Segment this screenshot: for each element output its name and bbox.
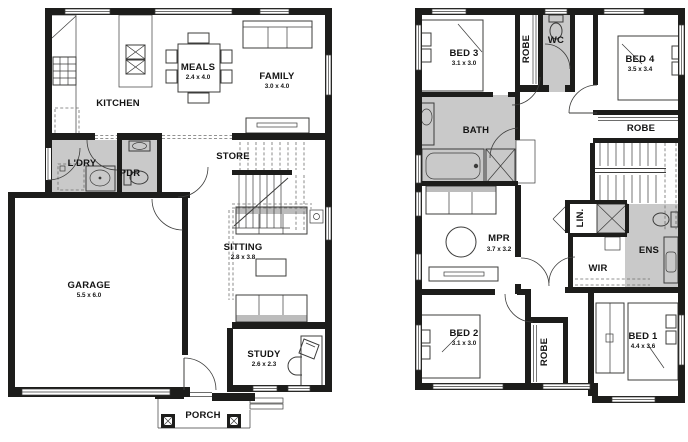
window [155, 9, 232, 14]
window [432, 9, 466, 14]
laundry-external-door [46, 148, 51, 180]
room-label-porch: PORCH [185, 410, 220, 421]
robe2-sliding-doors [534, 325, 537, 382]
room-label-garage: GARAGE [68, 280, 111, 291]
window [260, 9, 289, 14]
room-dim-bed1: 4.4 x 3.6 [631, 343, 656, 350]
window [416, 192, 421, 216]
window [543, 384, 590, 389]
garage-door-panel [22, 389, 170, 395]
room-label-bath: BATH [463, 125, 489, 136]
room-label-robe4: ROBE [627, 123, 655, 134]
robe4-sliding-doors [598, 118, 683, 121]
entry-door-swing [184, 358, 216, 390]
family-sofa [243, 21, 312, 48]
room-label-kitchen: KITCHEN [96, 98, 140, 109]
room-label-family: FAMILY [259, 71, 295, 82]
room-dim-sitting: 2.8 x 3.8 [231, 254, 256, 261]
hall-linen-cupboard [516, 140, 535, 183]
mpr-round-table [446, 227, 476, 257]
linen-bifold-door [553, 206, 566, 232]
wall-light-symbol [310, 210, 323, 223]
cooktop-symbol [126, 45, 145, 74]
window [612, 397, 655, 402]
ground-labels: KITCHEN MEALS 2.4 x 4.0 FAMILY 3.0 x 4.0… [68, 62, 295, 421]
ground-floor-plan: KITCHEN MEALS 2.4 x 4.0 FAMILY 3.0 x 4.0… [8, 8, 332, 428]
room-label-lin: LIN. [575, 209, 586, 228]
tv-unit-mpr [429, 267, 498, 281]
room-label-bed1: BED 1 [629, 331, 658, 342]
room-dim-mpr: 3.7 x 3.2 [487, 246, 512, 253]
room-dim-bed3: 3.1 x 3.0 [452, 60, 477, 67]
window [604, 9, 644, 14]
window [416, 25, 421, 70]
sitting-sofa-bottom [236, 295, 307, 322]
stair-cupboard [597, 204, 627, 233]
wc-area [543, 12, 571, 92]
study-desk [288, 336, 322, 389]
ground-stairs [232, 175, 290, 228]
room-dim-meals: 2.4 x 4.0 [186, 74, 211, 81]
room-label-meals: MEALS [181, 62, 215, 73]
window [545, 9, 567, 14]
window [679, 25, 684, 75]
window [288, 386, 310, 391]
island-bench [119, 15, 152, 87]
window [679, 315, 684, 365]
room-dim-bed2: 3.1 x 3.0 [452, 340, 477, 347]
oven-tower [53, 57, 76, 85]
room-label-bed2: BED 2 [450, 328, 479, 339]
room-label-ldry: L'DRY [68, 158, 97, 169]
tv-unit-family [246, 118, 309, 133]
window [326, 55, 331, 95]
wir-shelf [605, 237, 620, 250]
garage-door-swing [152, 199, 183, 230]
window [416, 325, 421, 370]
room-label-ens: ENS [639, 245, 659, 256]
room-label-wir: WIR [588, 263, 607, 274]
room-dim-study: 2.6 x 2.3 [252, 361, 277, 368]
mpr-sofa [426, 186, 496, 214]
window [326, 207, 331, 240]
mpr-door-swing [521, 258, 549, 286]
kitchen-counter [50, 15, 76, 135]
room-label-bed4: BED 4 [626, 54, 655, 65]
room-label-pdr: PDR [120, 168, 141, 179]
room-label-study: STUDY [247, 349, 281, 360]
coffee-table [256, 259, 286, 276]
room-label-wc: WC [548, 35, 564, 46]
room-label-store: STORE [216, 151, 250, 162]
porch-post-right [227, 414, 241, 428]
room-dim-family: 3.0 x 4.0 [265, 83, 290, 90]
room-dim-garage: 5.5 x 6.0 [77, 292, 102, 299]
porch-post-left [161, 414, 175, 428]
robe3-sliding-doors [533, 14, 536, 84]
room-label-robe3: ROBE [521, 35, 532, 63]
room-label-sitting: SITTING [224, 242, 263, 253]
window [253, 386, 277, 391]
first-floor-plan: BED 3 3.1 x 3.0 ROBE WC BED 4 3.5 x 3.4 … [415, 8, 685, 403]
window [65, 9, 110, 14]
floorplan-canvas: KITCHEN MEALS 2.4 x 4.0 FAMILY 3.0 x 4.0… [0, 0, 688, 442]
window [416, 254, 421, 280]
room-dim-bed4: 3.5 x 3.4 [628, 66, 653, 73]
window [433, 384, 503, 389]
ground-walls [8, 8, 332, 401]
bed1-wardrobe [596, 303, 624, 373]
floorplan-drawing: KITCHEN MEALS 2.4 x 4.0 FAMILY 3.0 x 4.0… [0, 0, 688, 442]
room-label-mpr: MPR [488, 233, 510, 244]
room-label-bed3: BED 3 [450, 48, 479, 59]
window [416, 155, 421, 183]
room-label-robe2: ROBE [539, 338, 550, 366]
